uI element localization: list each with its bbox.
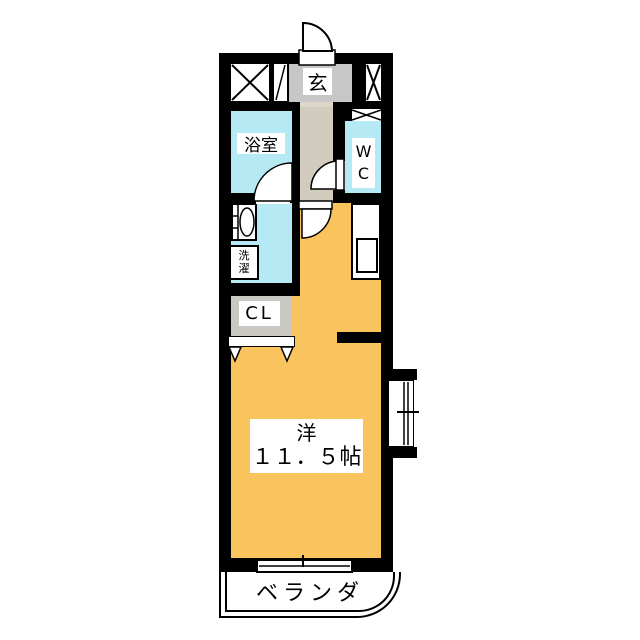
bay-jamb-bottom xyxy=(388,447,417,458)
toilet-label: WC xyxy=(354,141,372,184)
closet-label-box: CL xyxy=(239,301,280,326)
hallway-floor xyxy=(300,107,333,203)
bathroom-label: 浴室 xyxy=(244,131,278,156)
closet-door xyxy=(228,336,295,347)
shaft-right xyxy=(366,64,381,101)
washer-space: 洗濯 xyxy=(229,245,259,280)
washbasin-unit xyxy=(231,203,257,241)
entrance-door-arc xyxy=(303,23,332,51)
vent-fan xyxy=(352,109,381,121)
wall-stub xyxy=(337,332,381,343)
balcony: ベランダ xyxy=(225,572,395,612)
bay-jamb-top xyxy=(388,369,417,380)
room-size-label: １１．５帖 xyxy=(251,445,361,470)
kitchen-sink xyxy=(356,238,378,273)
pipe-shaft xyxy=(274,64,287,101)
bay-window-frame xyxy=(388,380,414,447)
shaft-left xyxy=(231,64,269,101)
bathroom-label-box: 浴室 xyxy=(237,133,285,154)
toilet-label-box: WC xyxy=(352,138,375,188)
balcony-label: ベランダ xyxy=(256,575,364,607)
room-label-box: 洋 １１．５帖 xyxy=(250,419,363,473)
closet-label: CL xyxy=(245,303,274,324)
entrance-label: 玄 xyxy=(308,67,328,96)
room-name-label: 洋 xyxy=(297,422,317,445)
laundry-label: 洗濯 xyxy=(238,250,250,275)
floor-plan: 洗濯 ベランダ xyxy=(0,0,640,640)
entrance-label-box: 玄 xyxy=(303,68,332,95)
